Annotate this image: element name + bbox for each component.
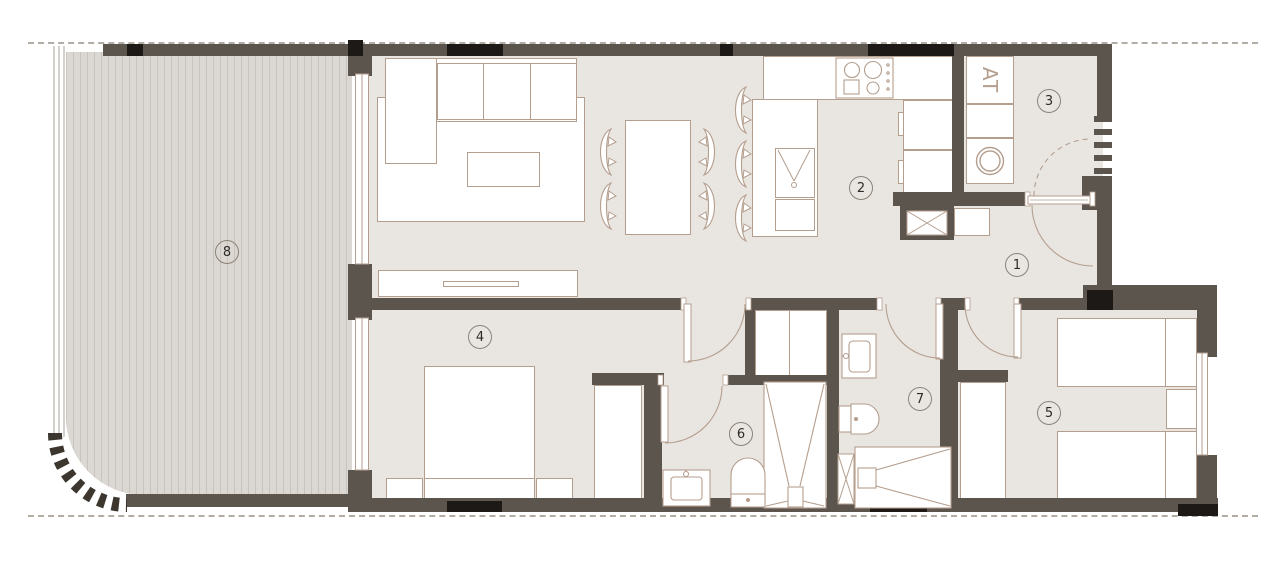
kitchen-sink	[778, 150, 810, 188]
room-number: 5	[1045, 406, 1053, 421]
room-label-5: 5	[1037, 401, 1061, 425]
chairs	[601, 87, 752, 241]
plan-graphics	[0, 0, 1280, 570]
terrace-curved-parapet	[55, 433, 127, 505]
shower	[764, 382, 826, 508]
utility-at-label: AT	[966, 56, 1014, 104]
room-number: 1	[1013, 258, 1021, 273]
room-number: 2	[857, 181, 865, 196]
room-number: 6	[737, 427, 745, 442]
sink	[663, 470, 710, 506]
utility-at-text: AT	[978, 67, 1002, 93]
room-label-8: 8	[215, 240, 239, 264]
door-swing-arcs	[665, 139, 1093, 443]
cooktop	[836, 58, 893, 98]
room-label-4: 4	[468, 325, 492, 349]
room-label-1: 1	[1005, 253, 1029, 277]
toilet	[731, 458, 765, 507]
shaft	[838, 454, 854, 504]
room-label-3: 3	[1037, 89, 1061, 113]
terrace-railing	[54, 46, 64, 437]
room-number: 7	[916, 392, 924, 407]
room-label-2: 2	[849, 176, 873, 200]
washing-machine-icon	[977, 148, 1004, 175]
room-label-6: 6	[729, 422, 753, 446]
room-number: 3	[1045, 94, 1053, 109]
floor-plan: 1 2 3 4 5 6 7 8 AT	[0, 0, 1280, 570]
sink	[842, 334, 876, 378]
bathtub	[855, 447, 951, 508]
toilet	[839, 404, 879, 434]
room-number: 8	[223, 245, 231, 260]
door-leaves	[661, 196, 1090, 442]
shaft	[907, 211, 947, 235]
room-number: 4	[476, 330, 484, 345]
room-label-7: 7	[908, 387, 932, 411]
